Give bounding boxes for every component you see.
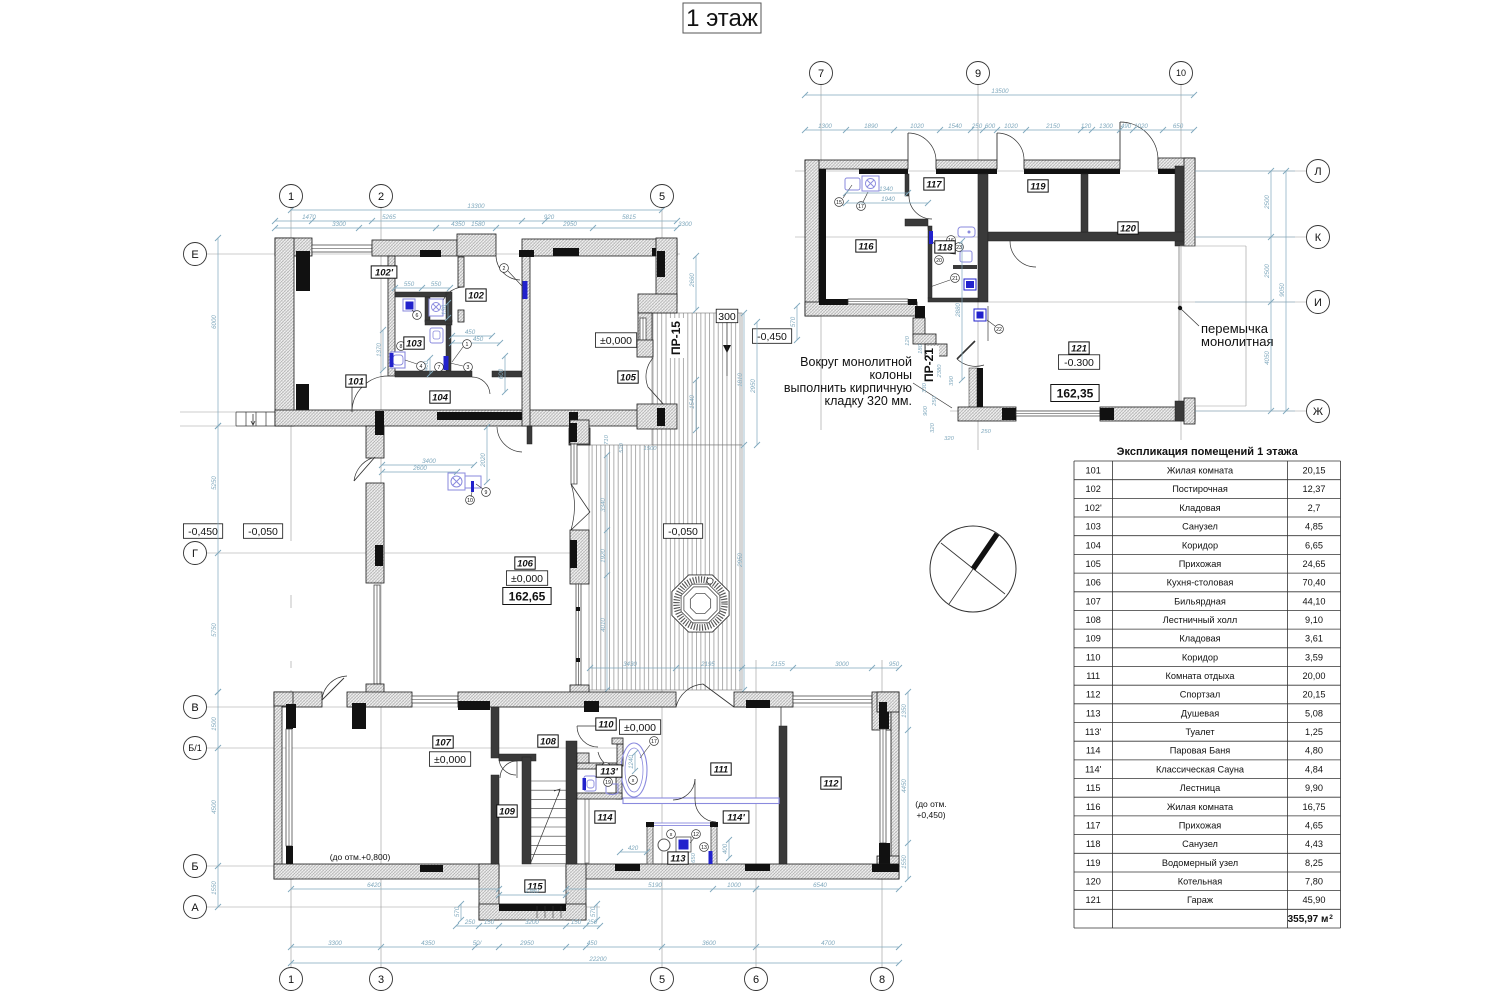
svg-text:570: 570: [454, 906, 461, 917]
svg-text:250: 250: [980, 429, 991, 435]
svg-text:20: 20: [936, 258, 942, 264]
svg-text:1000: 1000: [727, 882, 741, 889]
svg-text:108: 108: [1086, 615, 1101, 625]
svg-text:x: x: [632, 778, 635, 784]
svg-text:кладку 320 мм.: кладку 320 мм.: [825, 394, 912, 408]
svg-text:355,97 м: 355,97 м: [1288, 914, 1329, 925]
svg-text:3300: 3300: [328, 940, 342, 947]
svg-text:1350: 1350: [901, 704, 908, 718]
svg-text:13500: 13500: [991, 88, 1009, 95]
svg-text:1500: 1500: [644, 446, 658, 452]
svg-text:1240: 1240: [628, 755, 635, 769]
svg-text:104: 104: [1086, 540, 1101, 550]
svg-text:102': 102': [1085, 503, 1102, 513]
svg-text:3: 3: [467, 365, 470, 371]
svg-text:5: 5: [659, 191, 665, 203]
svg-text:320: 320: [930, 422, 936, 432]
svg-text:1370: 1370: [376, 343, 383, 357]
svg-text:4500: 4500: [211, 800, 218, 814]
svg-text:20,15: 20,15: [1303, 690, 1326, 700]
svg-text:570: 570: [790, 316, 797, 327]
svg-text:9,10: 9,10: [1305, 615, 1323, 625]
svg-text:117: 117: [1086, 821, 1101, 831]
svg-text:250: 250: [464, 919, 476, 926]
svg-text:111: 111: [1086, 671, 1100, 681]
svg-text:3200: 3200: [525, 919, 539, 926]
svg-text:119: 119: [1030, 181, 1046, 192]
svg-text:А: А: [191, 902, 199, 914]
svg-text:2500: 2500: [1264, 195, 1271, 210]
svg-text:120: 120: [1086, 877, 1101, 887]
svg-text:1540: 1540: [689, 395, 696, 409]
svg-text:3300: 3300: [678, 221, 692, 228]
svg-text:118: 118: [1086, 839, 1101, 849]
svg-text:15: 15: [836, 200, 842, 206]
svg-text:колоны: колоны: [869, 368, 912, 382]
svg-text:1: 1: [288, 191, 294, 203]
svg-text:162,35: 162,35: [1057, 386, 1094, 400]
svg-text:3300: 3300: [332, 221, 346, 228]
svg-text:2195: 2195: [700, 661, 715, 668]
svg-text:Прихожая: Прихожая: [1179, 559, 1222, 569]
svg-text:1340: 1340: [879, 186, 893, 193]
svg-text:1550: 1550: [901, 855, 908, 869]
svg-text:102: 102: [1086, 484, 1101, 494]
svg-text:1470: 1470: [302, 214, 316, 221]
svg-text:2600: 2600: [412, 465, 427, 472]
svg-text:50/: 50/: [473, 940, 483, 947]
svg-text:-0.300: -0.300: [1064, 357, 1094, 369]
svg-text:4,85: 4,85: [1305, 522, 1323, 532]
svg-text:17: 17: [651, 739, 657, 745]
svg-text:121: 121: [1086, 895, 1101, 905]
svg-text:120: 120: [905, 335, 911, 345]
svg-text:250: 250: [586, 919, 598, 926]
svg-text:570: 570: [590, 906, 597, 917]
svg-text:16,75: 16,75: [1303, 802, 1326, 812]
svg-text:250: 250: [971, 123, 983, 130]
svg-text:7: 7: [818, 68, 824, 80]
svg-text:1890: 1890: [864, 123, 878, 130]
svg-text:Кладовая: Кладовая: [1179, 634, 1220, 644]
svg-text:12: 12: [693, 832, 699, 838]
svg-text:К: К: [1315, 232, 1322, 244]
svg-text:5265: 5265: [382, 214, 396, 221]
svg-text:150: 150: [484, 919, 495, 926]
svg-text:4,80: 4,80: [1305, 746, 1323, 756]
svg-text:950: 950: [889, 661, 900, 668]
svg-text:6420: 6420: [367, 882, 381, 889]
svg-text:320: 320: [944, 436, 954, 442]
svg-text:113': 113': [600, 766, 618, 777]
svg-text:101: 101: [1086, 466, 1101, 476]
svg-text:2155: 2155: [770, 661, 785, 668]
svg-text:108: 108: [540, 736, 557, 747]
svg-text:550: 550: [404, 281, 415, 288]
svg-text:113: 113: [1086, 708, 1101, 718]
svg-text:-0,450: -0,450: [757, 331, 787, 343]
svg-text:21: 21: [952, 276, 958, 282]
svg-text:Кухня-столовая: Кухня-столовая: [1167, 578, 1234, 588]
svg-text:115: 115: [1086, 783, 1101, 793]
svg-text:1020: 1020: [1004, 123, 1018, 130]
svg-text:2660: 2660: [689, 273, 696, 288]
svg-text:1020: 1020: [1134, 123, 1148, 130]
svg-text:±0,000: ±0,000: [434, 754, 466, 766]
svg-text:1 этаж: 1 этаж: [686, 5, 758, 32]
svg-text:2380: 2380: [937, 364, 943, 379]
svg-text:20,00: 20,00: [1303, 671, 1326, 681]
svg-text:1810: 1810: [737, 373, 744, 387]
svg-text:4350: 4350: [421, 940, 435, 947]
svg-text:Душевая: Душевая: [1181, 708, 1219, 718]
svg-text:121: 121: [1071, 343, 1087, 354]
svg-text:6,65: 6,65: [1305, 540, 1323, 550]
svg-text:Жилая комната: Жилая комната: [1167, 466, 1234, 476]
svg-text:выполнить кирпичную: выполнить кирпичную: [784, 381, 912, 395]
svg-text:3400: 3400: [422, 458, 436, 465]
svg-text:920: 920: [544, 214, 555, 221]
svg-text:107: 107: [1086, 596, 1101, 606]
svg-text:1580: 1580: [471, 221, 485, 228]
svg-text:3,61: 3,61: [1305, 634, 1323, 644]
svg-text:4010: 4010: [600, 618, 607, 632]
svg-text:13300: 13300: [467, 203, 485, 210]
svg-text:3600: 3600: [702, 940, 716, 947]
svg-text:Бильярдная: Бильярдная: [1174, 596, 1226, 606]
svg-text:ПР-15: ПР-15: [669, 321, 683, 355]
svg-text:Прихожая: Прихожая: [1179, 821, 1222, 831]
svg-text:900: 900: [923, 405, 929, 415]
svg-text:Санузел: Санузел: [1182, 522, 1218, 532]
svg-text:118: 118: [937, 242, 953, 253]
svg-text:Экспликация помещений 1 этажа: Экспликация помещений 1 этажа: [1117, 446, 1299, 458]
svg-text:19: 19: [605, 780, 611, 786]
svg-text:104: 104: [432, 392, 449, 403]
svg-text:-0,450: -0,450: [188, 526, 218, 538]
svg-text:1,25: 1,25: [1305, 727, 1323, 737]
svg-text:23: 23: [956, 245, 962, 251]
svg-text:Постирочная: Постирочная: [1172, 484, 1228, 494]
svg-text:102: 102: [468, 290, 485, 301]
svg-text:5190: 5190: [648, 882, 662, 889]
svg-text:600: 600: [498, 368, 505, 379]
svg-text:Гараж: Гараж: [1187, 895, 1214, 905]
svg-text:6: 6: [416, 313, 419, 319]
svg-text:12,37: 12,37: [1303, 484, 1326, 494]
svg-text:4050: 4050: [1264, 351, 1271, 365]
svg-text:3430: 3430: [623, 661, 637, 668]
svg-text:109: 109: [1086, 634, 1101, 644]
svg-text:(до отм.: (до отм.: [915, 799, 947, 809]
svg-text:330: 330: [922, 382, 928, 392]
svg-text:114: 114: [1086, 746, 1101, 756]
svg-text:Спортзал: Спортзал: [1180, 690, 1221, 700]
svg-text:Е: Е: [191, 249, 198, 261]
svg-text:20,15: 20,15: [1303, 466, 1326, 476]
svg-text:9050: 9050: [1279, 283, 1286, 297]
svg-text:114': 114': [727, 812, 745, 823]
svg-text:109: 109: [499, 806, 516, 817]
svg-text:8: 8: [879, 974, 885, 986]
svg-text:450: 450: [465, 329, 476, 336]
svg-text:112: 112: [1086, 690, 1101, 700]
svg-text:2950: 2950: [562, 221, 577, 228]
svg-text:105: 105: [1086, 559, 1101, 569]
svg-text:5815: 5815: [622, 214, 636, 221]
svg-text:3,59: 3,59: [1305, 652, 1323, 662]
svg-text:130: 130: [441, 304, 448, 315]
svg-text:119: 119: [1086, 858, 1101, 868]
svg-text:105: 105: [620, 372, 637, 383]
svg-text:1020: 1020: [910, 123, 924, 130]
svg-text:1300: 1300: [1099, 123, 1113, 130]
svg-text:Л: Л: [1314, 166, 1321, 178]
svg-text:монолитная: монолитная: [1201, 334, 1274, 349]
svg-text:113: 113: [670, 853, 686, 864]
svg-text:7,80: 7,80: [1305, 877, 1323, 887]
svg-text:650: 650: [1173, 123, 1184, 130]
svg-text:3000: 3000: [835, 661, 849, 668]
svg-text:111: 111: [714, 764, 728, 775]
svg-text:9: 9: [485, 490, 488, 496]
svg-text:112: 112: [823, 778, 839, 789]
svg-text:450: 450: [473, 336, 484, 343]
svg-text:70,40: 70,40: [1303, 578, 1326, 588]
svg-text:2150: 2150: [1045, 123, 1060, 130]
svg-text:13: 13: [701, 845, 707, 851]
svg-text:Туалет: Туалет: [1185, 727, 1215, 737]
svg-text:5: 5: [659, 974, 665, 986]
svg-text:-0,050: -0,050: [248, 526, 278, 538]
svg-text:Кладовая: Кладовая: [1179, 503, 1220, 513]
svg-text:±0,000: ±0,000: [600, 335, 632, 347]
svg-text:9,90: 9,90: [1305, 783, 1323, 793]
svg-text:600: 600: [985, 123, 996, 130]
svg-text:120: 120: [1081, 123, 1092, 130]
svg-text:Г: Г: [192, 548, 198, 560]
svg-text:110: 110: [1086, 652, 1101, 662]
svg-text:24,65: 24,65: [1303, 559, 1326, 569]
svg-text:Б: Б: [191, 861, 198, 873]
svg-text:120: 120: [1120, 223, 1137, 234]
svg-text:117: 117: [926, 179, 942, 190]
svg-text:2,7: 2,7: [1308, 503, 1321, 513]
svg-text:1360: 1360: [525, 888, 539, 895]
svg-text:550: 550: [431, 281, 442, 288]
svg-text:6000: 6000: [211, 315, 218, 329]
svg-text:10: 10: [467, 498, 473, 504]
svg-text:6: 6: [753, 974, 759, 986]
svg-text:390: 390: [949, 375, 955, 385]
svg-text:1: 1: [288, 974, 294, 986]
svg-text:2: 2: [503, 266, 506, 272]
svg-text:Санузел: Санузел: [1182, 839, 1218, 849]
svg-text:8,25: 8,25: [1305, 858, 1323, 868]
svg-text:45,90: 45,90: [1303, 895, 1326, 905]
svg-text:106: 106: [517, 558, 534, 569]
svg-text:1540: 1540: [948, 123, 962, 130]
svg-text:520: 520: [619, 442, 625, 452]
svg-text:8: 8: [400, 344, 403, 350]
svg-text:Паровая Баня: Паровая Баня: [1170, 746, 1231, 756]
svg-text:Классическая Сауна: Классическая Сауна: [1156, 764, 1245, 774]
svg-text:103: 103: [406, 338, 423, 349]
svg-text:162,65: 162,65: [509, 589, 546, 603]
svg-text:116: 116: [858, 241, 874, 252]
svg-text:2500: 2500: [1264, 264, 1271, 279]
svg-text:5,08: 5,08: [1305, 708, 1323, 718]
svg-text:2950: 2950: [737, 553, 744, 568]
svg-text:106: 106: [1086, 578, 1101, 588]
svg-text:Котельная: Котельная: [1178, 877, 1222, 887]
svg-text:1920: 1920: [600, 549, 607, 563]
svg-text:Вокруг монолитной: Вокруг монолитной: [800, 355, 912, 369]
svg-text:150: 150: [571, 919, 582, 926]
svg-text:±0,000: ±0,000: [511, 573, 543, 585]
svg-text:490: 490: [1121, 123, 1132, 130]
svg-text:102': 102': [375, 267, 394, 278]
svg-text:2: 2: [378, 191, 384, 203]
svg-text:Б/1: Б/1: [188, 743, 201, 753]
svg-text:4700: 4700: [821, 940, 835, 947]
svg-text:113': 113': [1085, 727, 1102, 737]
svg-text:9: 9: [975, 68, 981, 80]
svg-text:4,43: 4,43: [1305, 839, 1323, 849]
svg-text:x: x: [670, 832, 673, 838]
svg-text:Водомерный узел: Водомерный узел: [1162, 858, 1238, 868]
svg-text:±0,000: ±0,000: [624, 722, 656, 734]
svg-text:10: 10: [1176, 68, 1186, 78]
svg-text:180: 180: [918, 343, 924, 353]
svg-text:6540: 6540: [813, 882, 827, 889]
svg-text:-0,050: -0,050: [668, 526, 698, 538]
svg-text:ПР-21: ПР-21: [922, 348, 936, 382]
svg-text:2950: 2950: [750, 379, 757, 394]
svg-text:Ж: Ж: [1313, 406, 1323, 418]
svg-text:110: 110: [598, 719, 614, 730]
svg-text:7: 7: [438, 365, 441, 371]
svg-text:2: 2: [1329, 914, 1333, 921]
svg-text:3340: 3340: [600, 498, 607, 512]
svg-text:650: 650: [691, 852, 697, 862]
svg-text:4450: 4450: [901, 779, 908, 793]
svg-text:250: 250: [932, 395, 938, 406]
svg-text:710: 710: [604, 434, 610, 444]
svg-text:22200: 22200: [588, 956, 607, 963]
svg-text:114: 114: [597, 812, 613, 823]
svg-text:1: 1: [466, 342, 469, 348]
svg-text:1940: 1940: [881, 196, 895, 203]
svg-text:В: В: [191, 702, 198, 714]
svg-text:5750: 5750: [211, 623, 218, 637]
svg-text:101: 101: [348, 376, 364, 387]
svg-text:44,10: 44,10: [1303, 596, 1326, 606]
svg-text:(до отм.+0,800): (до отм.+0,800): [330, 852, 391, 862]
svg-text:Коридор: Коридор: [1182, 540, 1218, 550]
svg-text:Лестничный холл: Лестничный холл: [1163, 615, 1237, 625]
svg-text:116: 116: [1086, 802, 1101, 812]
svg-text:+0,450): +0,450): [916, 810, 945, 820]
svg-text:103: 103: [1086, 522, 1101, 532]
svg-text:1550: 1550: [211, 881, 218, 895]
svg-text:4: 4: [420, 364, 423, 370]
svg-text:4,65: 4,65: [1305, 821, 1323, 831]
svg-text:И: И: [1314, 297, 1322, 309]
svg-text:5250: 5250: [211, 476, 218, 490]
svg-text:400: 400: [722, 843, 729, 854]
svg-text:Жилая комната: Жилая комната: [1167, 802, 1234, 812]
svg-text:107: 107: [435, 737, 452, 748]
svg-text:3: 3: [378, 974, 384, 986]
svg-text:1300: 1300: [818, 123, 832, 130]
svg-text:17: 17: [858, 204, 864, 210]
svg-text:300: 300: [718, 311, 736, 323]
svg-text:2880: 2880: [955, 303, 962, 318]
svg-text:4350: 4350: [451, 221, 465, 228]
svg-text:420: 420: [628, 845, 639, 852]
svg-text:1500: 1500: [211, 717, 218, 731]
svg-text:Комната отдыха: Комната отдыха: [1166, 671, 1236, 681]
svg-text:114': 114': [1085, 764, 1102, 774]
svg-text:2020: 2020: [480, 453, 487, 468]
svg-text:450: 450: [587, 940, 598, 947]
svg-text:2950: 2950: [519, 940, 534, 947]
svg-text:22: 22: [996, 327, 1002, 333]
svg-text:4,84: 4,84: [1305, 764, 1323, 774]
svg-text:Лестница: Лестница: [1180, 783, 1221, 793]
svg-text:Коридор: Коридор: [1182, 652, 1218, 662]
